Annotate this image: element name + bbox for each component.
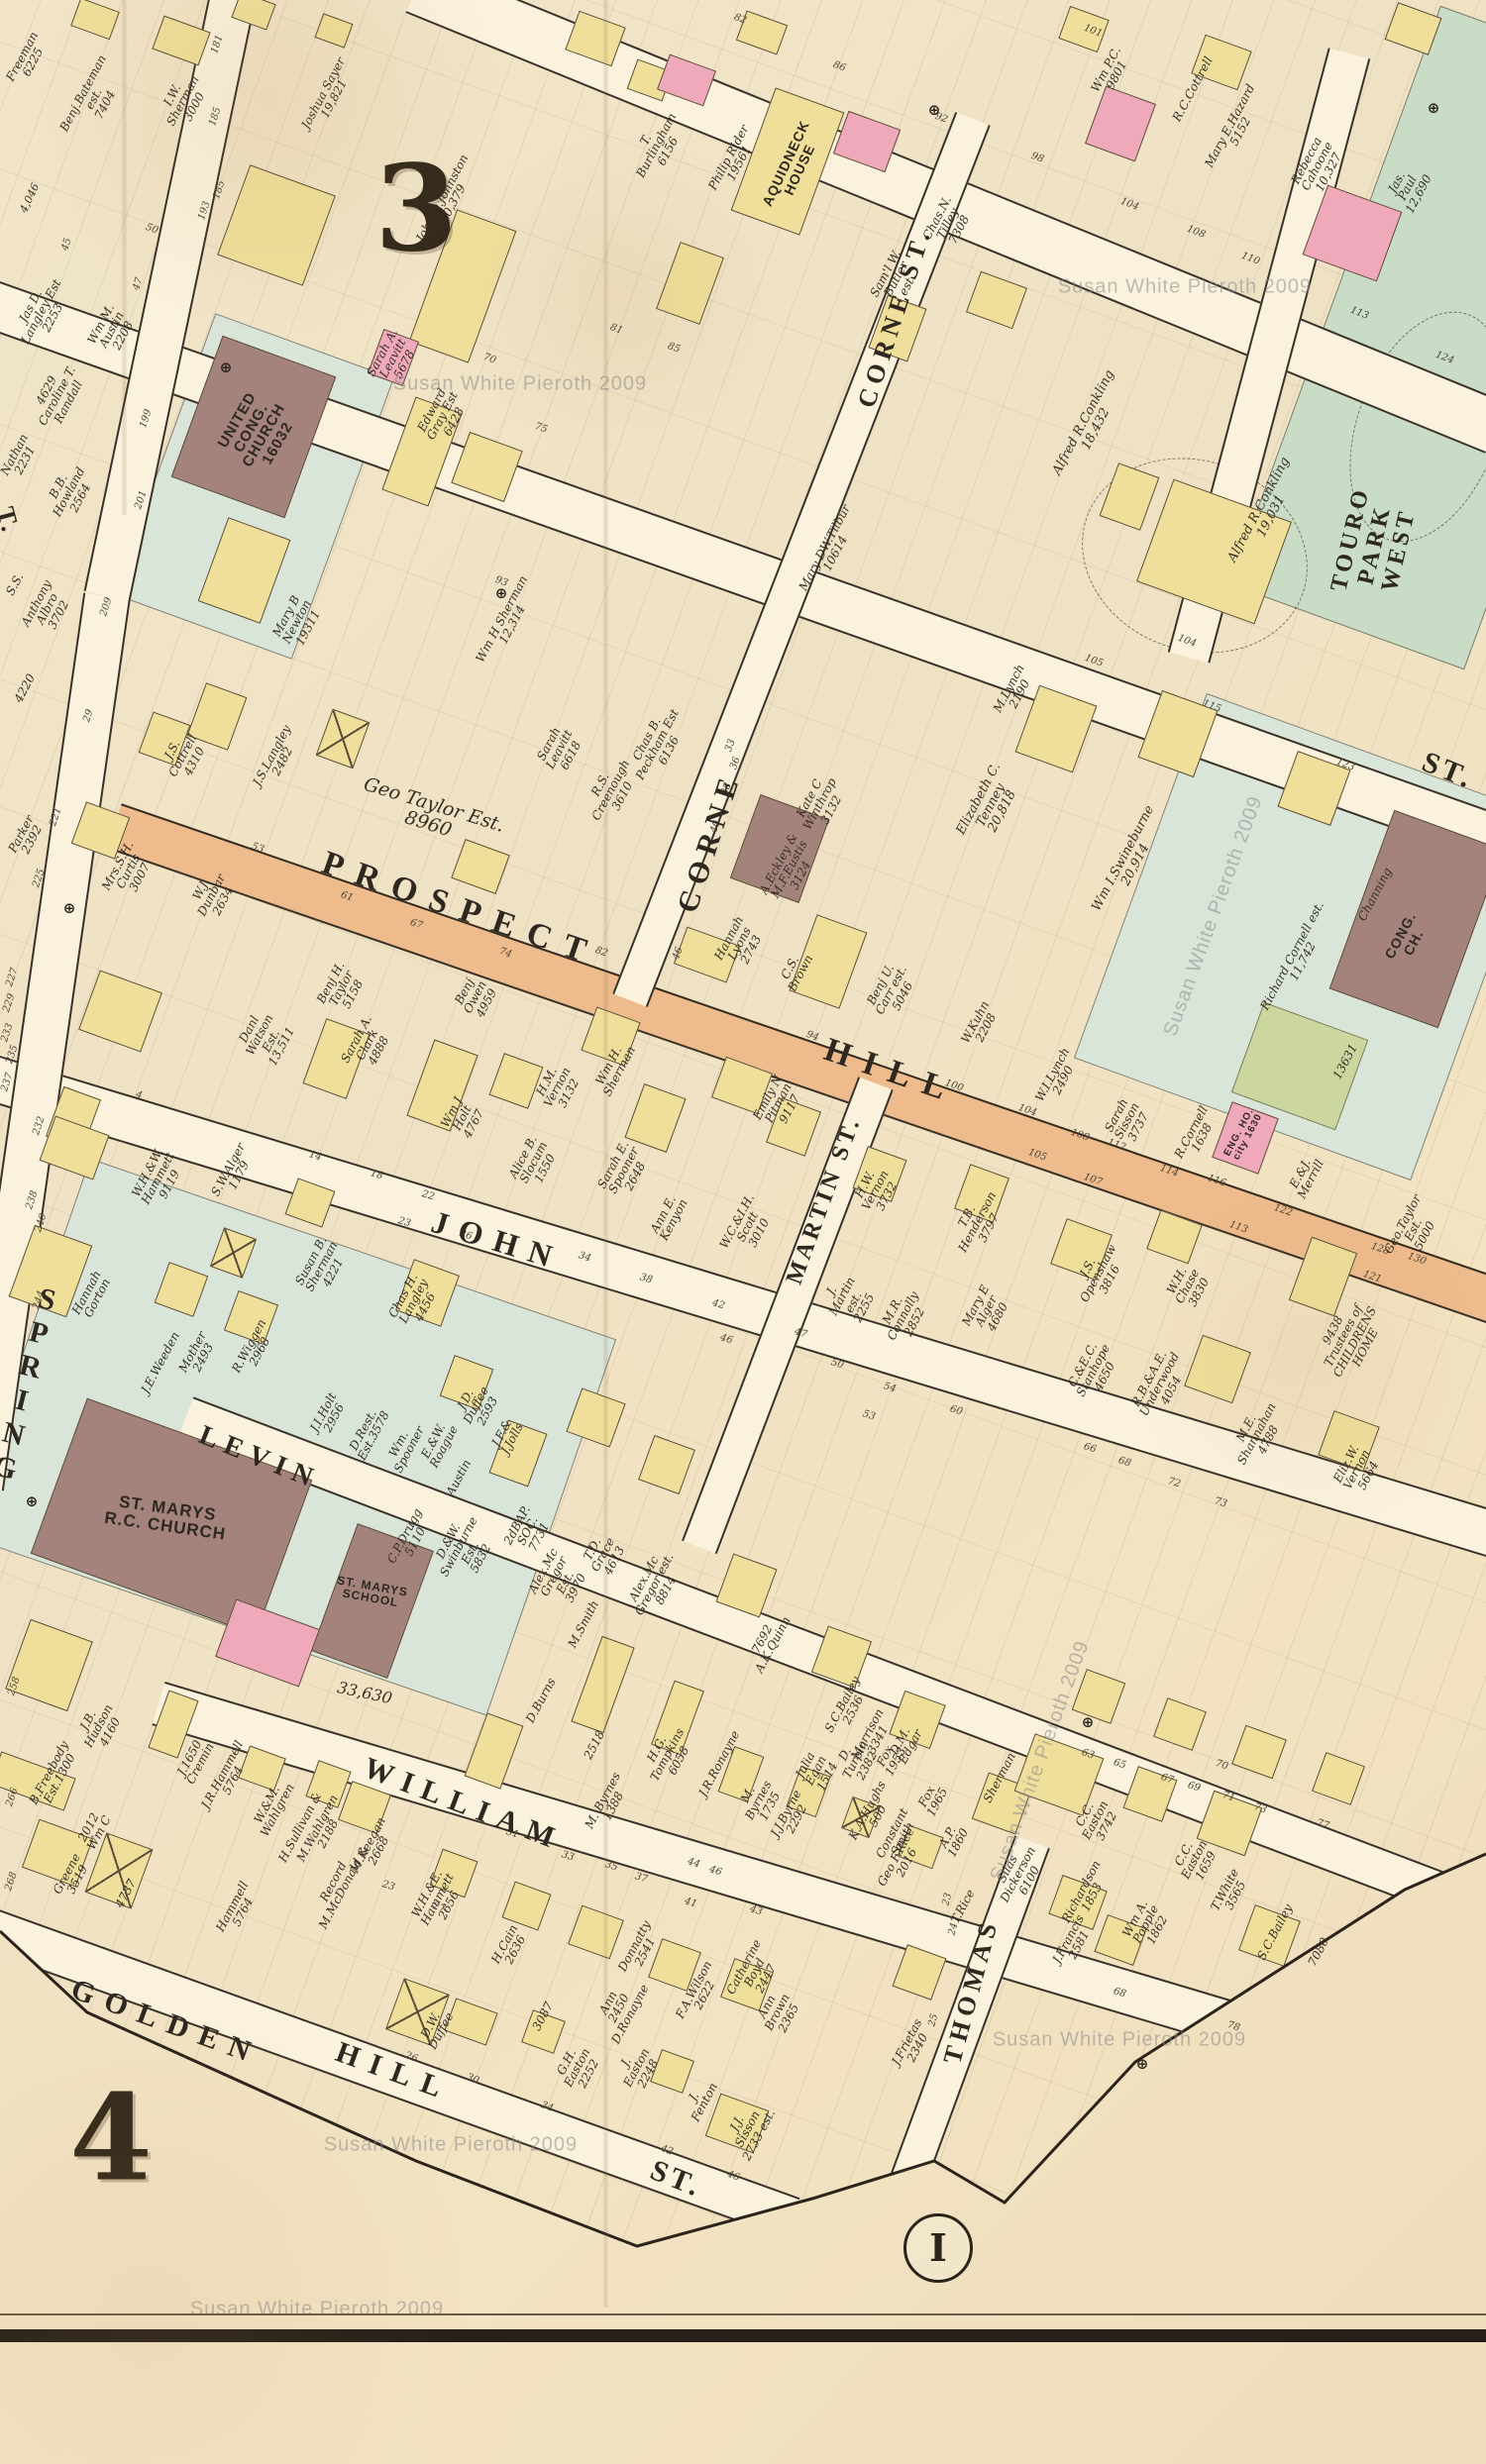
paper-fold-crease [602, 0, 609, 2308]
survey-mark-icon: ⊕ [1428, 101, 1440, 117]
plate-number: 4 [69, 2078, 153, 2202]
survey-mark-icon: ⊕ [63, 901, 76, 917]
watermark-text: Susan White Pieroth 2009 [1058, 277, 1312, 298]
watermark-text: Susan White Pieroth 2009 [993, 2030, 1246, 2051]
survey-mark-icon: ⊕ [495, 586, 508, 602]
sheet-border-thin-rule [0, 2313, 1486, 2315]
survey-mark-icon: ⊕ [1082, 1715, 1095, 1731]
watermark-text: Susan White Pieroth 2009 [190, 2300, 444, 2320]
sheet-border-thick-rule [0, 2329, 1486, 2342]
survey-mark-icon: ⊕ [26, 1494, 39, 1510]
watermark-text: Susan White Pieroth 2009 [324, 2135, 578, 2156]
historic-plat-map-sheet: Freeman 6225Benj.Bateman est. 7404I.W. S… [0, 0, 1486, 2464]
survey-mark-icon: ⊕ [928, 103, 941, 119]
plate-number: 3 [374, 149, 458, 272]
survey-mark-icon: ⊕ [1136, 2057, 1149, 2073]
map-sheet-index-circle: I [903, 2213, 973, 2283]
watermark-text: Susan White Pieroth 2009 [393, 374, 647, 395]
survey-mark-icon: ⊕ [220, 360, 233, 376]
